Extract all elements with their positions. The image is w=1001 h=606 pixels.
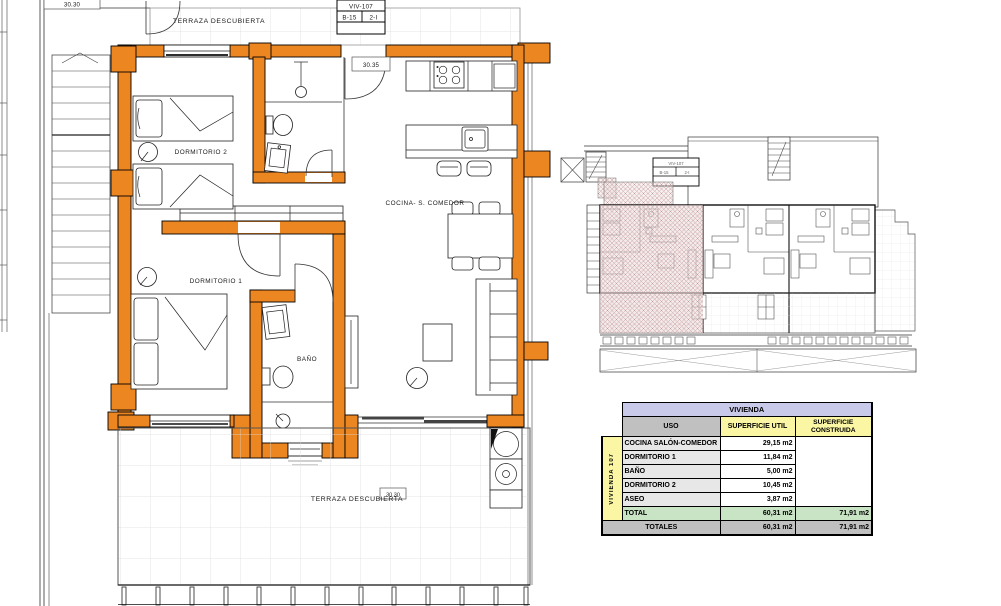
row-uso: COCINA SALÓN-COMEDOR xyxy=(622,437,720,451)
site-ramp-strip xyxy=(600,349,916,372)
entrance-door xyxy=(342,46,386,99)
total-construida: 71,91 m2 xyxy=(795,507,872,521)
total-row: TOTAL 60,31 m2 71,91 m2 xyxy=(602,507,872,521)
site-right-terrace xyxy=(875,210,915,331)
cooktop xyxy=(434,62,464,88)
table-spacer xyxy=(602,417,622,437)
dining-set xyxy=(448,202,513,270)
total-label: TOTAL xyxy=(622,507,720,521)
unit-code: VIV-107 xyxy=(349,4,373,11)
top-terrace-label: TERRAZA DESCUBIERTA xyxy=(173,18,265,25)
shower-bano xyxy=(276,414,290,428)
tv-unit xyxy=(345,316,358,388)
single-bed-1 xyxy=(133,96,233,141)
label-dormitorio1: DORMITORIO 1 xyxy=(190,278,243,285)
site-upper-terrace xyxy=(688,137,878,207)
single-bed-2 xyxy=(133,164,233,209)
furniture-dormitorio1 xyxy=(131,268,227,390)
row-uso: DORMITORIO 1 xyxy=(622,451,720,465)
block-code: B-15 xyxy=(342,15,357,22)
bar-stool xyxy=(467,161,491,176)
site-block-code: B-15 xyxy=(659,170,669,175)
dining-table xyxy=(448,214,513,258)
dim-top-left-box: 30.30 xyxy=(44,0,100,9)
sofa xyxy=(476,279,517,395)
row-uso: ASEO xyxy=(622,493,720,507)
site-highlight-hatch xyxy=(600,205,703,333)
table-row: VIVIENDA 107 COCINA SALÓN-COMEDOR 29,15 … xyxy=(602,437,872,451)
label-bano: BAÑO xyxy=(297,354,317,363)
laundry-units xyxy=(490,428,522,508)
door-bano xyxy=(295,264,333,302)
sink-bano xyxy=(262,305,290,340)
toilet-bano xyxy=(262,366,293,388)
fence xyxy=(118,585,530,605)
col-header-superficie-construida: SUPERFICIE CONSTRUIDA xyxy=(795,417,872,437)
site-entry-hatch xyxy=(598,178,673,205)
totales-label: TOTALES xyxy=(602,521,720,536)
dining-chair xyxy=(452,257,473,270)
site-balustrade xyxy=(600,335,912,346)
row-uso: DORMITORIO 2 xyxy=(622,479,720,493)
site-plan: VIV-107 B-15 2-I xyxy=(561,137,916,372)
dim-entrance-label: 30.35 xyxy=(363,62,380,69)
vivienda-107-side-label: VIVIENDA 107 xyxy=(602,437,622,521)
coffee-table xyxy=(423,324,452,361)
label-dormitorio2: DORMITORIO 2 xyxy=(175,149,228,156)
row-uso: BAÑO xyxy=(622,465,720,479)
col-header-superficie-util: SUPERFICIE UTIL xyxy=(720,417,795,437)
label-cocina: COCINA- S. COMEDOR xyxy=(386,200,465,207)
window-dormitorio2 xyxy=(164,45,230,57)
col-header-uso: USO xyxy=(622,417,720,437)
table-title: VIVIENDA xyxy=(622,403,872,417)
stairs-west xyxy=(52,53,110,313)
row-util: 10,45 m2 xyxy=(720,479,795,493)
furniture-kitchen xyxy=(406,61,517,270)
construida-empty-cell xyxy=(795,437,872,507)
shower-head xyxy=(294,62,308,98)
areas-table: VIVIENDA USO SUPERFICIE UTIL SUPERFICIE … xyxy=(601,402,873,536)
bottom-terrace: 30.30 TERRAZA DESCUBIERTA xyxy=(118,428,530,605)
row-util: 29,15 m2 xyxy=(720,437,795,451)
row-util: 3,87 m2 xyxy=(720,493,795,507)
site-gallery-strip xyxy=(587,205,600,293)
unit-info-box: VIV-107 B-15 2-I xyxy=(337,0,385,34)
type-code: 2-I xyxy=(369,15,377,22)
toilet-aseo xyxy=(266,115,293,136)
top-terrace: TERRAZA DESCUBIERTA xyxy=(146,1,520,45)
window-dormitorio1 xyxy=(150,415,230,427)
totales-construida: 71,91 m2 xyxy=(795,521,872,536)
totales-util: 60,31 m2 xyxy=(720,521,795,536)
table-spacer xyxy=(602,403,622,417)
sliding-glass-door xyxy=(358,417,489,424)
dining-chair xyxy=(479,257,500,270)
totales-row: TOTALES 60,31 m2 71,91 m2 xyxy=(602,521,872,536)
floor-plan-sheet: TERRAZA DESCUBIERTA VIV-107 B-15 2-I xyxy=(0,0,1001,606)
site-type-code: 2-I xyxy=(684,170,689,175)
furniture-aseo xyxy=(264,62,308,173)
furniture-living xyxy=(345,279,517,395)
row-util: 5,00 m2 xyxy=(720,465,795,479)
double-bed xyxy=(131,294,227,389)
sink-aseo xyxy=(264,143,290,174)
dim-entrance-box: 30.35 xyxy=(352,57,390,71)
dining-chair xyxy=(479,202,500,215)
furniture-bano xyxy=(262,305,333,428)
bar-stool xyxy=(437,161,461,176)
dim-top-left-label: 30.30 xyxy=(64,2,81,9)
row-util: 11,84 m2 xyxy=(720,451,795,465)
door-dormitorio1 xyxy=(238,222,280,276)
total-util: 60,31 m2 xyxy=(720,507,795,521)
door-aseo xyxy=(305,150,332,182)
bottom-terrace-label: TERRAZA DESCUBIERTA xyxy=(311,496,403,503)
kitchen-island xyxy=(406,125,517,176)
site-unit-code: VIV-107 xyxy=(668,161,684,166)
